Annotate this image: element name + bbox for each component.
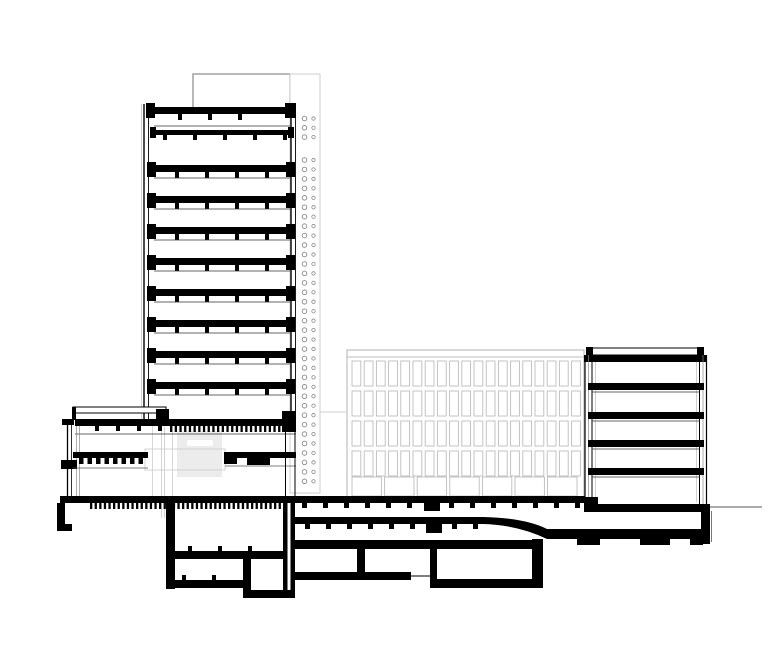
shaft-dots-right: [312, 215, 315, 218]
b1-ceiling-ticks: [452, 524, 457, 529]
shaft-dots-left: [302, 403, 307, 408]
ground-and-basement: [57, 496, 762, 598]
right-building: [584, 347, 707, 504]
ground-comb: [159, 503, 161, 509]
ground-left-wall: [57, 503, 65, 527]
shaft-dots-left: [302, 375, 307, 380]
floor-beam-ticks: [175, 234, 179, 240]
ground-comb: [154, 503, 156, 509]
shaft-dots-left: [302, 479, 307, 484]
floor-beam-ticks: [265, 203, 269, 209]
left-basement-wall: [166, 503, 175, 589]
shaft-dots-left: [302, 205, 307, 210]
shaft-dots-right: [312, 168, 315, 171]
rbasement-level2-floor: [293, 572, 411, 580]
podium-railing: [73, 407, 166, 413]
ground-comb: [196, 503, 198, 509]
core-shaft-opening: [187, 440, 213, 446]
floor-beam-ticks: [265, 172, 269, 178]
podium-mid-comb: [130, 458, 135, 464]
b1-ceiling-ticks: [368, 524, 373, 529]
floor-beam-ticks: [205, 327, 209, 333]
b1-ceiling-ticks: [326, 524, 331, 529]
ground-comb: [279, 503, 281, 509]
floor-end-block-left: [147, 224, 156, 239]
ground-comb: [214, 503, 216, 509]
floor-beam-ticks: [175, 327, 179, 333]
rb-floor-slab: [588, 468, 704, 475]
podium-roof-comb: [175, 426, 177, 432]
foundation-wedge: [483, 517, 703, 539]
core-basement-wall-a: [283, 497, 288, 598]
rbasement-lower-floor: [430, 579, 540, 588]
shaft-dots-left: [302, 451, 307, 456]
b1-floor-upstands: [218, 546, 222, 551]
floor-end-block-right: [286, 286, 295, 301]
podium-roof-slab: [75, 419, 296, 426]
rbasement-mid-wall: [357, 548, 365, 580]
shaft-dots-right: [312, 395, 315, 398]
podium-roof-comb: [222, 426, 224, 432]
floor-beam-ticks: [265, 389, 269, 395]
floor-end-block-left: [147, 162, 156, 177]
floor-beam-ticks: [265, 265, 269, 271]
ground-ticks: [575, 503, 580, 508]
ground-comb: [256, 503, 258, 509]
ground-comb: [118, 503, 120, 509]
railing-block-right: [156, 409, 169, 420]
rb-ground-slab: [584, 504, 710, 512]
shaft-dots-left: [302, 309, 307, 314]
roof-parapet-left: [146, 103, 155, 118]
floor-end-block-right: [286, 224, 295, 239]
floor-beam-ticks: [175, 265, 179, 271]
podium-roof-comb: [170, 426, 172, 432]
podium-roof-comb: [217, 426, 219, 432]
roof-parapet-right: [285, 103, 296, 118]
b1-ceiling-ticks: [389, 524, 394, 529]
ground-comb: [200, 503, 202, 509]
podium-roof-comb: [236, 426, 238, 432]
floor-slab: [150, 351, 294, 358]
floor-beam-ticks: [175, 358, 179, 364]
podium-mid-comb: [122, 458, 127, 464]
shaft-dots-left: [302, 158, 307, 163]
podium-roof-comb: [231, 426, 233, 432]
ground-comb: [191, 503, 193, 509]
shaft-dots-left-top: [302, 116, 307, 121]
shaft-dots-right: [312, 262, 315, 265]
shaft-dots-left: [302, 214, 307, 219]
shaft-dots-right: [312, 376, 315, 379]
shaft-dots-right: [312, 206, 315, 209]
shaft-dots-left-top: [302, 135, 307, 140]
floor-beam-ticks: [205, 389, 209, 395]
floor-beam-ticks: [175, 389, 179, 395]
floor-beam-ticks: [175, 296, 179, 302]
background-facade-outline: [347, 350, 584, 497]
pit-floor: [243, 590, 293, 598]
ground-comb: [251, 503, 253, 509]
ground-comb: [127, 503, 129, 509]
rb-floor-slab: [588, 383, 704, 390]
mech-ticks: [193, 135, 197, 140]
podium-mid-comb: [139, 458, 144, 464]
floor-beam-ticks: [265, 358, 269, 364]
railing-post-left: [72, 407, 76, 420]
ground-left-foot: [57, 524, 72, 531]
ground-comb: [219, 503, 221, 509]
b2-floor-upstands: [182, 575, 186, 580]
ground-comb: [265, 503, 267, 509]
ground-ticks: [470, 503, 475, 508]
ground-ticks: [323, 503, 328, 508]
podium-roof-ticks: [137, 426, 141, 431]
floor-beam-ticks: [205, 358, 209, 364]
ground-comb: [131, 503, 133, 509]
floor-beam-ticks: [235, 172, 239, 178]
floor-end-block-right: [286, 348, 295, 363]
ground-slab: [60, 496, 585, 503]
podium-wall-cap: [62, 419, 74, 425]
ground-comb: [113, 503, 115, 509]
podium-roof-comb: [255, 426, 257, 432]
podium-mid-slab-left: [73, 452, 148, 458]
ground-comb: [269, 503, 271, 509]
podium-roof-comb: [203, 426, 205, 432]
b2-floor-upstands: [212, 575, 216, 580]
b1-ceiling-block: [426, 524, 442, 533]
floor-beam-ticks: [205, 296, 209, 302]
shaft-dots-right-top: [312, 135, 315, 138]
shaft-dots-right: [312, 461, 315, 464]
tower-roof-slab: [148, 107, 296, 114]
floor-beam-ticks: [235, 358, 239, 364]
floor-slab: [150, 258, 294, 265]
ground-ticks: [302, 503, 307, 508]
floor-end-block-right: [286, 317, 295, 332]
b1-ceiling-slab: [293, 517, 483, 524]
floor-beam-ticks: [265, 234, 269, 240]
ground-comb: [150, 503, 152, 509]
ground-comb: [246, 503, 248, 509]
tower: [142, 103, 297, 419]
podium-roof-comb: [273, 426, 275, 432]
podium-roof-comb: [184, 426, 186, 432]
shaft-dots-right-top: [312, 126, 315, 129]
shaft-dots-left: [302, 394, 307, 399]
shaft-dots-left: [302, 299, 307, 304]
floor-slab: [150, 289, 294, 296]
shaft-dots-left: [302, 441, 307, 446]
shaft-dots-left: [302, 290, 307, 295]
ground-comb: [182, 503, 184, 509]
shaft-dots-right-top: [312, 117, 315, 120]
ground-comb: [177, 503, 179, 509]
shaft-dots-right: [312, 310, 315, 313]
ground-comb: [108, 503, 110, 509]
podium-roof-comb: [226, 426, 228, 432]
shaft-dots-right: [312, 300, 315, 303]
ground-comb: [95, 503, 97, 509]
b1-ceiling-ticks: [347, 524, 352, 529]
shaft-dots-right: [312, 480, 315, 483]
floor-slab: [150, 196, 294, 203]
shaft-dots-right: [312, 253, 315, 256]
rb-roof-slab: [584, 355, 707, 362]
shaft-dots-right: [312, 328, 315, 331]
shaft-dots-right: [312, 385, 315, 388]
shaft-dots-right: [312, 338, 315, 341]
ground-comb: [104, 503, 106, 509]
ground-comb: [122, 503, 124, 509]
shaft-dots-right: [312, 470, 315, 473]
shaft-dots-right: [312, 158, 315, 161]
shaft-dots-left: [302, 186, 307, 191]
floor-end-block-left: [147, 286, 156, 301]
ground-comb: [145, 503, 147, 509]
ground-comb: [90, 503, 92, 509]
shaft-dots-right: [312, 187, 315, 190]
shaft-dots-left: [302, 252, 307, 257]
ground-tick-block: [424, 503, 440, 511]
roof-beam-ticks: [178, 114, 182, 120]
ground-ticks: [344, 503, 349, 508]
ground-comb: [99, 503, 101, 509]
floor-beam-ticks: [265, 296, 269, 302]
rb-parapet-cap-right: [697, 347, 704, 355]
floor-slab: [150, 382, 294, 389]
floor-beam-ticks: [235, 327, 239, 333]
shaft-dots-left: [302, 356, 307, 361]
shaft-dots-right: [312, 442, 315, 445]
shaft-dots-right: [312, 234, 315, 237]
ground-ticks: [365, 503, 370, 508]
rbasement-lower-wall-left: [430, 548, 437, 586]
b1-ceiling-ticks: [473, 524, 478, 529]
shaft-dots-left: [302, 366, 307, 371]
podium-mid-comb: [105, 458, 110, 464]
floor-beam-ticks: [235, 296, 239, 302]
floor-end-block-left: [147, 348, 156, 363]
podium-roof-comb: [208, 426, 210, 432]
shaft-dots-left: [302, 167, 307, 172]
foundation-right-wall: [701, 511, 710, 544]
shaft-dots-left: [302, 318, 307, 323]
shaft-dots-left: [302, 337, 307, 342]
floor-beam-ticks: [265, 327, 269, 333]
shaft-dots-left: [302, 413, 307, 418]
shaft-dots-left: [302, 233, 307, 238]
ground-ticks: [533, 503, 538, 508]
shaft-dots-left: [302, 470, 307, 475]
shaft-dots-left: [302, 385, 307, 390]
mech-band: [152, 130, 292, 135]
mech-block-right: [288, 127, 294, 138]
ground-comb: [233, 503, 235, 509]
podium-roof-comb: [212, 426, 214, 432]
podium-roof-ticks: [95, 426, 99, 431]
floor-slab: [150, 165, 294, 172]
rb-parapet-rail: [589, 348, 702, 355]
b1-floor-left: [175, 551, 283, 559]
rbasement-right-wall: [532, 539, 543, 588]
shaft-dots-right: [312, 423, 315, 426]
podium-roof-comb: [179, 426, 181, 432]
podium-roof-comb: [189, 426, 191, 432]
floor-beam-ticks: [205, 265, 209, 271]
rb-parapet-cap-left: [586, 347, 593, 355]
b1-floor-upstands: [188, 546, 192, 551]
floor-end-block-left: [147, 193, 156, 208]
shaft-dots-left: [302, 422, 307, 427]
podium-roof-end-block: [282, 411, 296, 432]
shaft-dots-left: [302, 328, 307, 333]
mech-block-left: [150, 127, 156, 138]
section-drawing-svg: [0, 0, 780, 672]
podium-roof-ticks: [158, 426, 162, 431]
floor-end-block-right: [286, 379, 295, 394]
shaft-dots-right: [312, 366, 315, 369]
ground-comb: [164, 503, 166, 509]
shaft-dots-right: [312, 196, 315, 199]
mech-ticks: [253, 135, 257, 140]
podium-roof-ticks: [116, 426, 120, 431]
shaft-dots-left: [302, 281, 307, 286]
floor-beam-ticks: [235, 234, 239, 240]
podium-roof-comb: [245, 426, 247, 432]
ground-ticks: [512, 503, 517, 508]
floor-beam-ticks: [205, 172, 209, 178]
podium-roof-comb: [264, 426, 266, 432]
floor-end-block-right: [286, 162, 295, 177]
rbasement-level1-floor: [293, 540, 537, 549]
ground-comb: [141, 503, 143, 509]
podium-roof-comb: [250, 426, 252, 432]
ground-comb: [228, 503, 230, 509]
shaft-dots-right: [312, 281, 315, 284]
shaft-dots-right: [312, 432, 315, 435]
shaft-dots-right: [312, 413, 315, 416]
shaft-dots-right: [312, 177, 315, 180]
podium-mid-comb: [96, 458, 101, 464]
building-section-canvas: [0, 0, 780, 672]
podium-mid-comb: [79, 458, 84, 464]
podium-mid-step-b: [247, 458, 270, 465]
floor-end-block-right: [286, 193, 295, 208]
b1-ceiling-ticks: [410, 524, 415, 529]
shaft-dots-left: [302, 224, 307, 229]
ground-ticks: [386, 503, 391, 508]
shaft-dots-left: [302, 262, 307, 267]
ground-comb: [274, 503, 276, 509]
podium-roof-comb: [278, 426, 280, 432]
rb-floor-slab: [588, 440, 704, 447]
ground-comb: [242, 503, 244, 509]
shaft-dots-right: [312, 291, 315, 294]
floor-end-block-left: [147, 255, 156, 270]
mech-ticks: [163, 135, 167, 140]
podium-roof-comb: [241, 426, 243, 432]
shaft-dots-left: [302, 243, 307, 248]
floor-end-block-right: [286, 255, 295, 270]
shaft-dots-left: [302, 432, 307, 437]
roof-beam-ticks: [208, 114, 212, 120]
floor-end-block-left: [147, 379, 156, 394]
floor-beam-ticks: [175, 172, 179, 178]
roof-beam-ticks: [238, 114, 242, 120]
ground-ticks: [491, 503, 496, 508]
floor-slab: [150, 227, 294, 234]
podium-mid-comb: [88, 458, 93, 464]
ground-comb: [237, 503, 239, 509]
podium-roof-comb: [259, 426, 261, 432]
floor-slab: [150, 320, 294, 327]
floor-end-block-left: [147, 317, 156, 332]
ground-comb: [205, 503, 207, 509]
mech-ticks: [283, 135, 287, 140]
ground-comb: [136, 503, 138, 509]
shaft-dots-right: [312, 243, 315, 246]
floor-beam-ticks: [235, 265, 239, 271]
ground-comb: [260, 503, 262, 509]
floor-beam-ticks: [235, 203, 239, 209]
podium-mid-comb: [113, 458, 118, 464]
shaft-dots-right: [312, 357, 315, 360]
shaft-dots-left: [302, 196, 307, 201]
b1-floor-upstands: [248, 546, 252, 551]
shaft-dots-left: [302, 271, 307, 276]
floor-beam-ticks: [205, 234, 209, 240]
rb-floor-slab: [588, 412, 704, 419]
b1-ceiling-ticks: [305, 524, 310, 529]
shaft-dots-left: [302, 460, 307, 465]
b2-floor-left: [166, 580, 250, 588]
podium-roof-comb: [269, 426, 271, 432]
ground-ticks: [449, 503, 454, 508]
shaft-dots-left: [302, 177, 307, 182]
ground-ticks: [407, 503, 412, 508]
ground-ticks: [554, 503, 559, 508]
floor-beam-ticks: [175, 203, 179, 209]
floor-beam-ticks: [235, 389, 239, 395]
foundation-pier-b: [640, 539, 670, 545]
shaft-dots-left-top: [302, 126, 307, 131]
podium-roof-comb: [194, 426, 196, 432]
ground-comb: [187, 503, 189, 509]
penthouse-outline: [193, 74, 290, 108]
shaft-dots-right: [312, 451, 315, 454]
shaft-dots-right: [312, 347, 315, 350]
mech-ticks: [223, 135, 227, 140]
podium-mid-step-a: [224, 458, 237, 464]
shaft-dots-right: [312, 404, 315, 407]
shaft-dots-left: [302, 347, 307, 352]
shaft-dots-right: [312, 224, 315, 227]
ground-comb: [210, 503, 212, 509]
shaft-dots-right: [312, 272, 315, 275]
podium-roof-comb: [198, 426, 200, 432]
shaft-dots-right: [312, 319, 315, 322]
floor-beam-ticks: [205, 203, 209, 209]
foundation-pier-a: [577, 539, 600, 545]
ground-comb: [223, 503, 225, 509]
